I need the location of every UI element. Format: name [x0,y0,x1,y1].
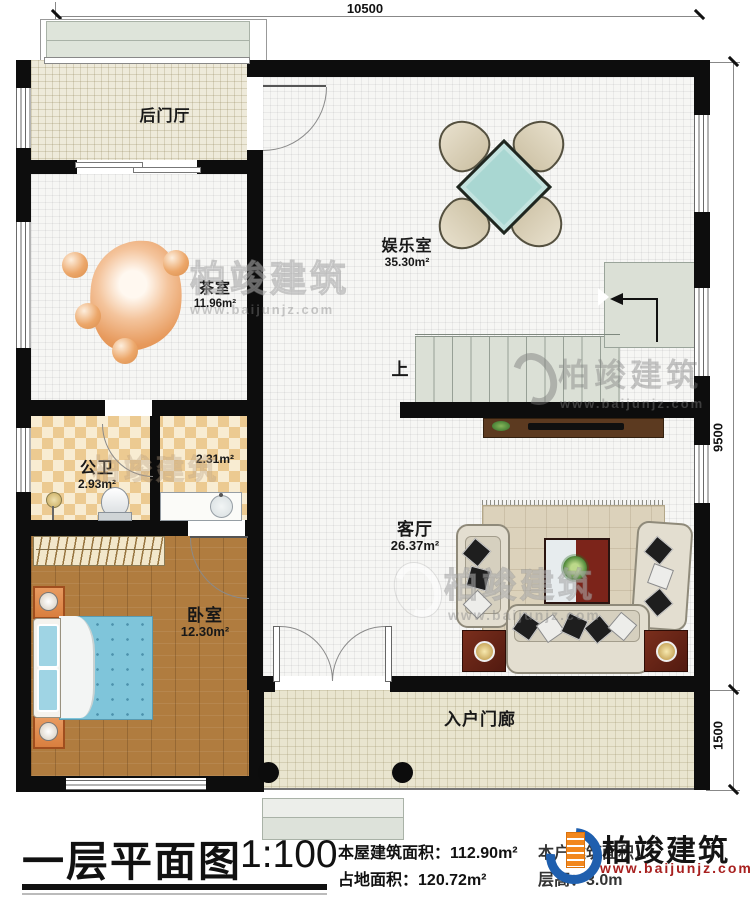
watermark-brand: 柏竣建筑 [190,250,390,302]
sliding-door-hall-2 [133,167,201,173]
tea-stool-3 [112,338,138,364]
window-left-tea [16,222,31,348]
porch-edge [263,788,694,790]
watermark-url: www.baijunjz.com [190,302,390,317]
label-back-hall: 后门厅 [115,108,215,126]
side-lamp-right [656,641,677,662]
bed-pillow-2 [37,668,59,712]
tv-screen [528,423,624,430]
watermark-brand: 柏竣建筑 [92,448,262,488]
stair-direction-line [622,298,658,300]
land-area-label: 占地面积： [338,872,418,889]
dim-right-lower-label: 1500 [711,706,726,766]
watermark-bath: 柏竣建筑 [92,448,262,488]
brand-logo-building-icon [566,832,585,868]
watermark-logo-glyph [505,346,566,413]
label-porch: 入户门廊 [415,710,545,729]
building-area-value: 112.90m² [450,845,518,862]
wall-bedroom-top [16,520,188,536]
rug-tassels-top [482,500,663,505]
floor-drain-stem [52,506,54,520]
stair-rail [415,334,620,335]
front-step-1 [262,798,404,819]
bedroom-name: 卧室 [160,606,250,625]
tv-plant [492,421,510,431]
door-bedroom-leaf [190,536,248,538]
side-lamp-left [474,641,495,662]
dim-right-upper-label: 9500 [711,408,726,468]
stair-direction-line-v [656,298,658,342]
door-entrance-leaf-right [385,626,392,682]
title-underline [22,884,327,890]
wall-hall-bottom-r [197,160,263,174]
stair-direction-arrowhead [610,293,623,305]
bedroom-area: 12.30m² [160,625,250,640]
floor-drain [46,492,62,508]
wall-living-bottom-r [390,676,694,692]
door-game-leaf [263,85,326,87]
sliding-door-backdoor [44,57,250,64]
info-land-area: 占地面积：120.72m² [338,866,487,890]
tea-stool-4 [163,250,189,276]
lamp-bottom [39,722,58,741]
stair-landing [604,262,696,348]
wall-bedroom-top-r [245,520,263,536]
window-left-bath [16,428,31,492]
toilet-tank [98,512,132,521]
plan-scale: 1:100 [240,833,338,877]
porch-floor [263,690,694,790]
watermark-brand: 柏竣建筑 [444,558,636,607]
back-step-1 [46,21,250,42]
watermark-url: www.baijunjz.com [560,396,724,411]
watermark-brand: 柏竣建筑 [558,350,724,396]
wardrobe-rail [36,549,160,550]
info-building-area: 本屋建筑面积：112.90m² [338,839,518,863]
window-right-game1 [694,115,710,212]
door-entrance-leaf-left [273,626,280,682]
plan-title: 一层平面图 [22,828,242,889]
watermark-logo-glyph [386,555,450,624]
window-bedroom [66,778,206,790]
dim-top-label: 10500 [330,1,400,16]
wall-left-3 [16,348,31,428]
wall-left-4 [16,492,31,792]
wall-right-2 [694,212,710,288]
title-underline-2 [22,893,327,895]
porch-column-right [392,762,413,783]
living-room-area: 26.37m² [370,539,460,554]
wall-tea-bottom-r [152,400,263,416]
label-living-room: 客厅 26.37m² [370,520,460,554]
label-bedroom: 卧室 12.30m² [160,606,250,640]
watermark-living: 柏竣建筑 www.baijunjz.com [396,558,636,623]
window-right-living [694,445,710,503]
wall-hall-bottom-l [31,160,77,174]
dim-line-top [55,16,700,17]
wall-tea-bottom-l [16,400,105,416]
floor-plan-canvas: 10500 9500 1500 上 [0,0,750,900]
wall-top [247,60,710,77]
tea-stool-1 [62,252,88,278]
porch-column-left [258,762,279,783]
tea-stool-2 [75,303,101,329]
wall-right-4 [694,503,710,790]
lamp-top [39,592,58,611]
window-left-hall [16,88,31,148]
dim-tick [694,9,705,20]
wall-left-2 [16,148,31,222]
building-area-label: 本屋建筑面积： [338,845,450,862]
watermark-url: www.baijunjz.com [448,607,636,623]
vanity-faucet [219,493,223,497]
wardrobe [33,536,165,566]
vanity-basin [210,495,233,518]
stair-up-label: 上 [388,360,412,379]
dim-line-right [733,62,734,790]
brand-logo: 柏竣建筑 www.baijunjz.com [544,824,750,886]
brand-logo-url: www.baijunjz.com [600,860,750,876]
stair-break-notch [598,288,609,306]
watermark-tea: 柏竣建筑 www.baijunjz.com [190,250,390,317]
land-area-value: 120.72m² [418,872,487,889]
bed-pillow-1 [37,624,59,668]
wall-left-1 [16,60,31,88]
watermark-stairs: 柏竣建筑 www.baijunjz.com [514,350,724,411]
bed-blanket [59,616,95,718]
living-room-name: 客厅 [370,520,460,539]
